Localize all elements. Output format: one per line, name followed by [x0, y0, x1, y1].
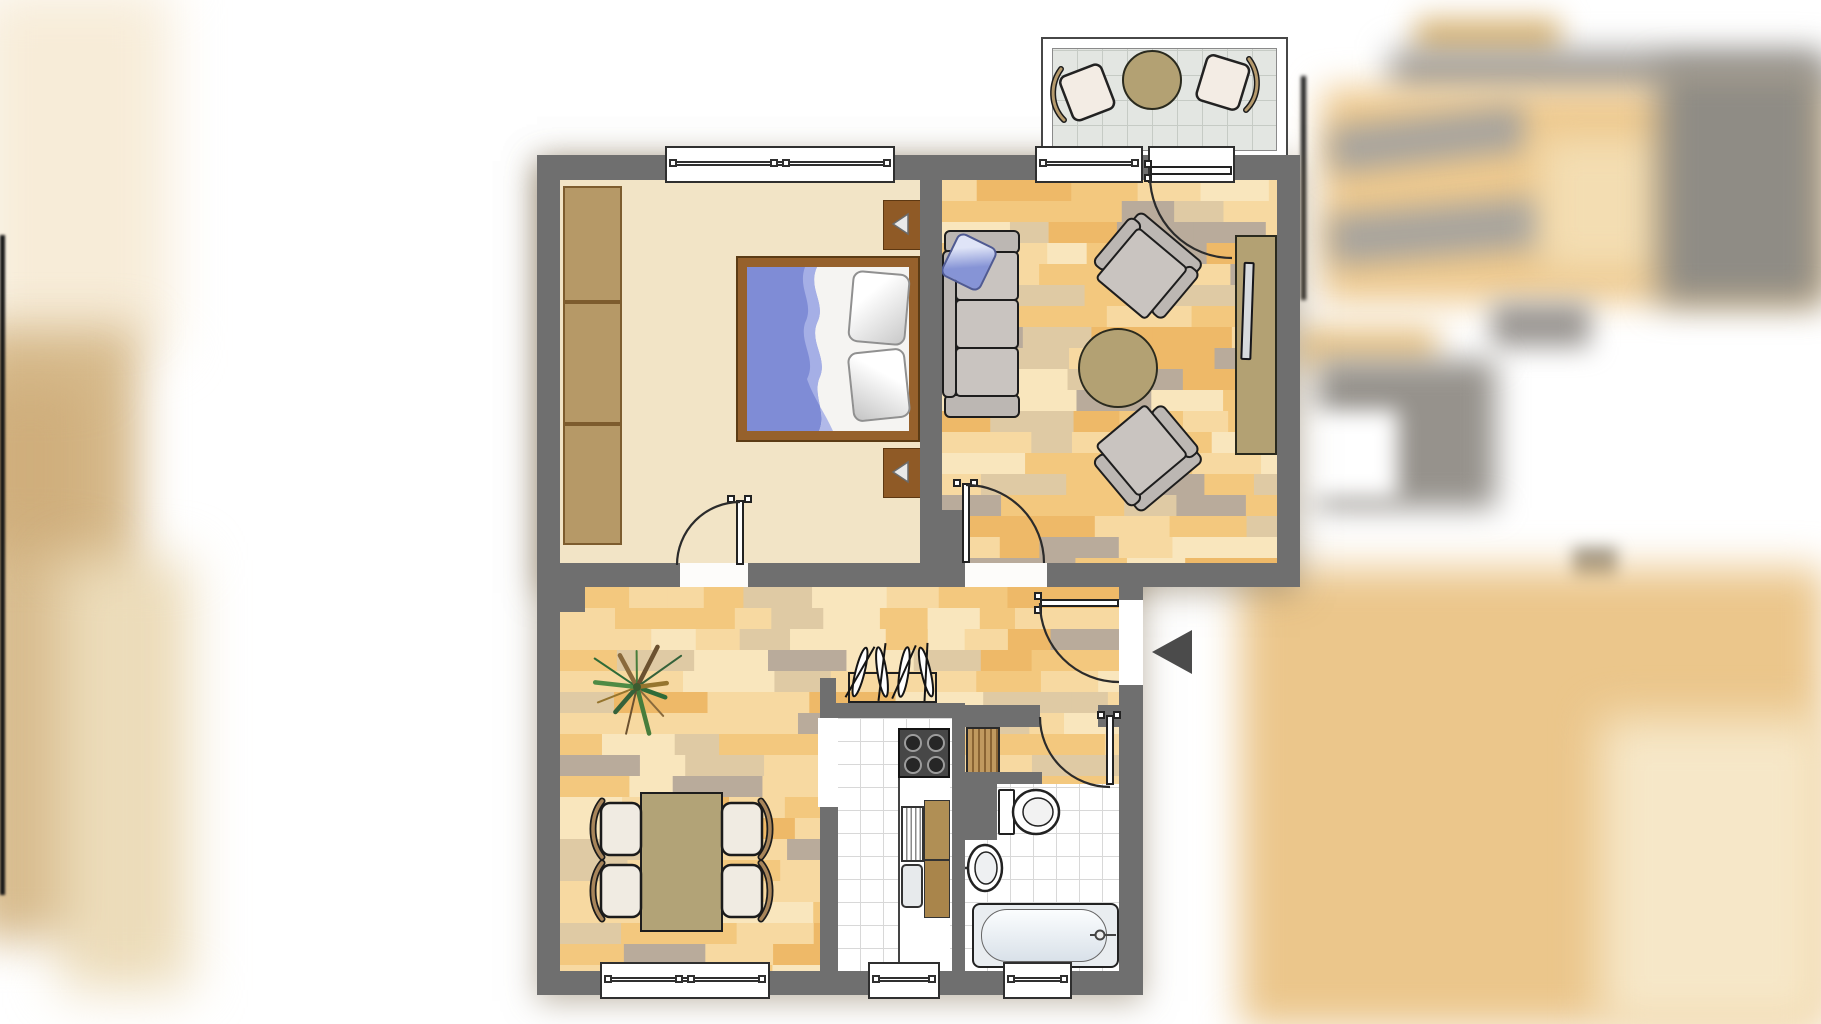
balcony-chair-left [1048, 58, 1118, 128]
wall-bedroom-bottom-b [748, 563, 920, 587]
bedroom-door-leaf [736, 500, 744, 565]
dining-chair [719, 858, 775, 924]
dining-window [600, 962, 770, 999]
window-glazing [873, 977, 935, 982]
living-room-door-handle [970, 479, 978, 487]
window-glazing [1008, 977, 1067, 982]
wall-living-room-bottom [1047, 563, 1300, 587]
balcony-door-frame [1148, 146, 1235, 183]
entry-direction-arrow [1150, 628, 1194, 676]
balcony-door-handle [1144, 174, 1152, 182]
living-room-door-leaf [962, 483, 970, 563]
window-handle [758, 975, 766, 983]
sink-drainer [901, 806, 924, 862]
screenshot-canvas [0, 0, 1821, 1024]
window-handle [928, 975, 936, 983]
dining-chair [719, 796, 775, 862]
sofa-3-seat [942, 230, 1022, 418]
nightstand-with-lamp [883, 448, 922, 498]
left-image-edge-line [0, 235, 5, 895]
wall-kitchen-left [820, 807, 838, 971]
entrance-door-handle [1034, 592, 1042, 600]
burner [927, 734, 945, 752]
wall-living-room-right [1277, 180, 1300, 563]
window-handle [883, 159, 891, 167]
window-handle [675, 975, 683, 983]
entrance-opening [1119, 600, 1143, 685]
balcony-door-handle [1144, 160, 1152, 168]
wall-kitchen-stub [820, 678, 836, 703]
louver-cabinet [966, 727, 1000, 776]
kitchen-cabinet [924, 860, 950, 918]
wall-bedroom-bottom-a [537, 563, 680, 587]
wardrobe-section [563, 424, 622, 545]
wardrobe-section [563, 186, 622, 302]
living-room-door-handle [953, 479, 961, 487]
balcony-round-table [1122, 50, 1182, 110]
living-room-window [1035, 146, 1143, 183]
balcony-chair-right [1192, 48, 1262, 118]
window-handle [1039, 159, 1047, 167]
bedroom-door-handle [727, 495, 735, 503]
bathroom-window [1003, 962, 1072, 999]
wall-bedroom-divider [920, 180, 942, 510]
window-handle [1060, 975, 1068, 983]
wall-kitchen-right [952, 718, 965, 971]
kitchen-window [868, 962, 940, 999]
right-image-edge-line [1301, 76, 1306, 300]
wall-bath-strip [997, 772, 1042, 784]
window-glazing [1040, 161, 1138, 166]
sofa-armrest [944, 394, 1020, 418]
bathroom-door-hinge [1097, 711, 1105, 719]
sofa-cushion [955, 299, 1019, 349]
bathroom-door-hinge [1113, 711, 1121, 719]
burner [927, 756, 945, 774]
wall-kitchen-top [820, 703, 965, 718]
burner [904, 734, 922, 752]
window-handle [1007, 975, 1015, 983]
potted-plant [584, 634, 690, 740]
kitchen-cabinet [924, 800, 950, 860]
burner [904, 756, 922, 774]
nightstand-with-lamp [883, 200, 922, 250]
kitchen-sink [901, 864, 923, 908]
wash-basin [960, 842, 1006, 894]
balcony-door-leaf [1150, 166, 1232, 175]
window-glazing [605, 977, 765, 982]
wall-bath-stub [963, 772, 997, 840]
kitchen-doorway-threshold [818, 718, 838, 807]
stove [898, 728, 950, 778]
window-handle [1131, 159, 1139, 167]
bedroom-door-handle [744, 495, 752, 503]
toilet-bowl [1010, 786, 1062, 838]
bed-pillow [847, 347, 912, 423]
window-handle [687, 975, 695, 983]
window-handle [669, 159, 677, 167]
sofa-cushion [955, 347, 1019, 397]
dining-table [640, 792, 723, 932]
wall-divider-pier [920, 510, 965, 587]
window-handle [782, 159, 790, 167]
window-handle [872, 975, 880, 983]
window-handle [604, 975, 612, 983]
bathtub-tap [1088, 925, 1118, 945]
entrance-door-leaf [1040, 599, 1119, 607]
wall-dining-stub [537, 587, 585, 612]
wardrobe-section [563, 302, 622, 424]
bathroom-door-leaf [1106, 715, 1114, 785]
bedroom-window [665, 146, 895, 183]
window-handle [770, 159, 778, 167]
dining-chair [588, 796, 644, 862]
coat-hangers [840, 638, 946, 708]
bed-pillow [847, 270, 911, 347]
window-glazing [670, 161, 890, 166]
entrance-door-handle [1034, 606, 1042, 614]
wall-corridor-top-a [965, 705, 1040, 727]
dining-chair [588, 858, 644, 924]
